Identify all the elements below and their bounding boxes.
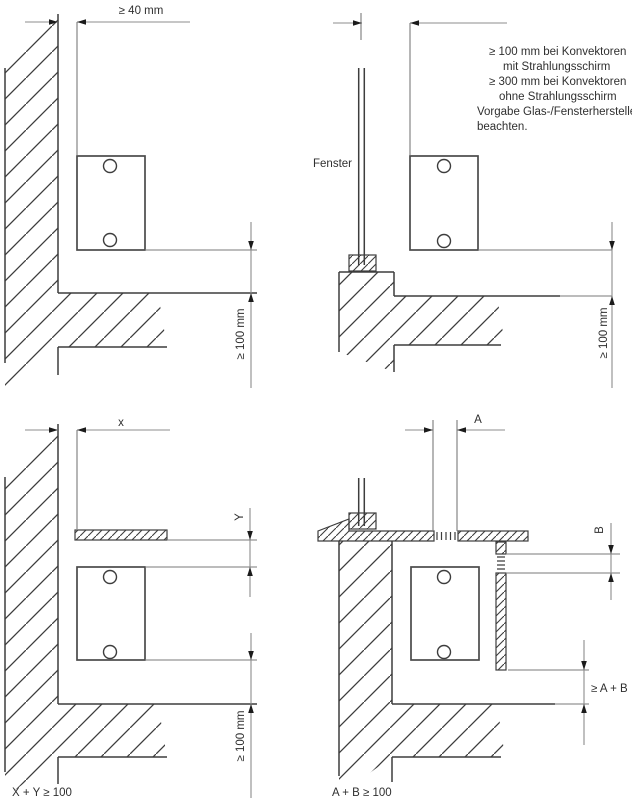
note-line-2: mit Strahlungsschirm	[503, 61, 610, 73]
floor-hatch	[58, 704, 167, 757]
convector-pipe-bottom	[104, 646, 117, 659]
note-line-3: ≥ 300 mm bei Konvektoren	[489, 76, 626, 88]
windowsill-board-right	[458, 531, 528, 541]
note-line-4: ohne Strahlungsschirm	[499, 91, 617, 103]
convector-clearance-diagram: ≥ 40 mm ≥ 100 mm Fenster ≥ 100 mm bei Ko…	[0, 0, 632, 808]
arrow-down-icon	[609, 241, 615, 250]
convector-pipe-top	[438, 571, 451, 584]
note-line-6: beachten.	[477, 121, 528, 133]
front-panel-bottom	[496, 573, 506, 670]
arrow-down-icon	[248, 241, 254, 250]
formula-label: X + Y ≥ 100	[12, 787, 72, 799]
grille-height-extension-lines	[506, 554, 620, 573]
floor-clearance-dimension-label: ≥ A + B	[591, 683, 628, 695]
floor-clearance-dimension-label: ≥ 100 mm	[235, 308, 247, 359]
floor-clearance-dimension-label: ≥ 100 mm	[235, 710, 247, 761]
arrow-down-icon	[248, 651, 254, 660]
arrow-left-icon	[457, 427, 466, 433]
floor-hatch	[58, 293, 167, 347]
grille-height-dimension-label: B	[594, 526, 606, 534]
wall-gap-dimension-label: ≥ 40 mm	[119, 5, 164, 17]
wall-gap-dimension-label: x	[118, 417, 124, 429]
window-glass	[359, 68, 365, 265]
window-label: Fenster	[313, 158, 352, 170]
convector-pipe-bottom	[438, 646, 451, 659]
arrow-left-icon	[77, 19, 86, 25]
arrow-up-icon	[609, 296, 615, 305]
grille-width-dimension-label: A	[474, 414, 482, 426]
arrow-up-icon	[248, 704, 254, 713]
arrow-up-icon	[608, 573, 614, 582]
note-line-5: Vorgabe Glas-/Fensterhersteller	[477, 106, 632, 118]
wall-hatch	[5, 15, 58, 400]
arrow-down-icon	[247, 531, 253, 540]
convector-pipe-bottom	[104, 234, 117, 247]
shelf-board	[75, 530, 167, 540]
arrow-left-icon	[410, 20, 419, 26]
panel-bottom-left: x Y ≥ 100 mm X + Y ≥ 100	[5, 417, 257, 799]
convector-pipe-top	[104, 571, 117, 584]
arrow-up-icon	[247, 567, 253, 576]
convector-pipe-bottom	[438, 235, 451, 248]
wall-hatch	[5, 424, 58, 798]
floor-clearance-dimension-label: ≥ 100 mm	[598, 307, 610, 358]
arrow-left-icon	[77, 427, 86, 433]
installation-diagram-page: ≥ 40 mm ≥ 100 mm Fenster ≥ 100 mm bei Ko…	[0, 0, 632, 808]
wall-hatch	[339, 541, 392, 795]
front-panel-grille	[497, 557, 505, 569]
front-panel-top	[496, 542, 506, 554]
windowsill-grille	[437, 532, 455, 540]
arrow-up-icon	[248, 293, 254, 302]
note-line-1: ≥ 100 mm bei Konvektoren	[489, 46, 626, 58]
floor-hatch	[392, 704, 505, 757]
floor-hatch	[394, 296, 505, 345]
arrow-up-icon	[581, 704, 587, 713]
arrow-down-icon	[581, 661, 587, 670]
panel-bottom-right: A B ≥ A + B A + B ≥ 100	[318, 414, 628, 799]
arrow-down-icon	[608, 545, 614, 554]
convector-pipe-top	[104, 160, 117, 173]
window-frame-block	[349, 513, 376, 529]
panel-top-left: ≥ 40 mm ≥ 100 mm	[5, 5, 257, 400]
panel-top-right: Fenster ≥ 100 mm bei Konvektoren mit Str…	[313, 13, 632, 388]
convector-pipe-top	[438, 160, 451, 173]
grille-width-extension-lines	[433, 420, 457, 531]
formula-label: A + B ≥ 100	[332, 787, 392, 799]
sill-hatch	[339, 272, 394, 372]
arrow-right-icon	[424, 427, 433, 433]
shelf-gap-dimension-label: Y	[234, 513, 246, 521]
window-frame-block	[349, 255, 376, 271]
